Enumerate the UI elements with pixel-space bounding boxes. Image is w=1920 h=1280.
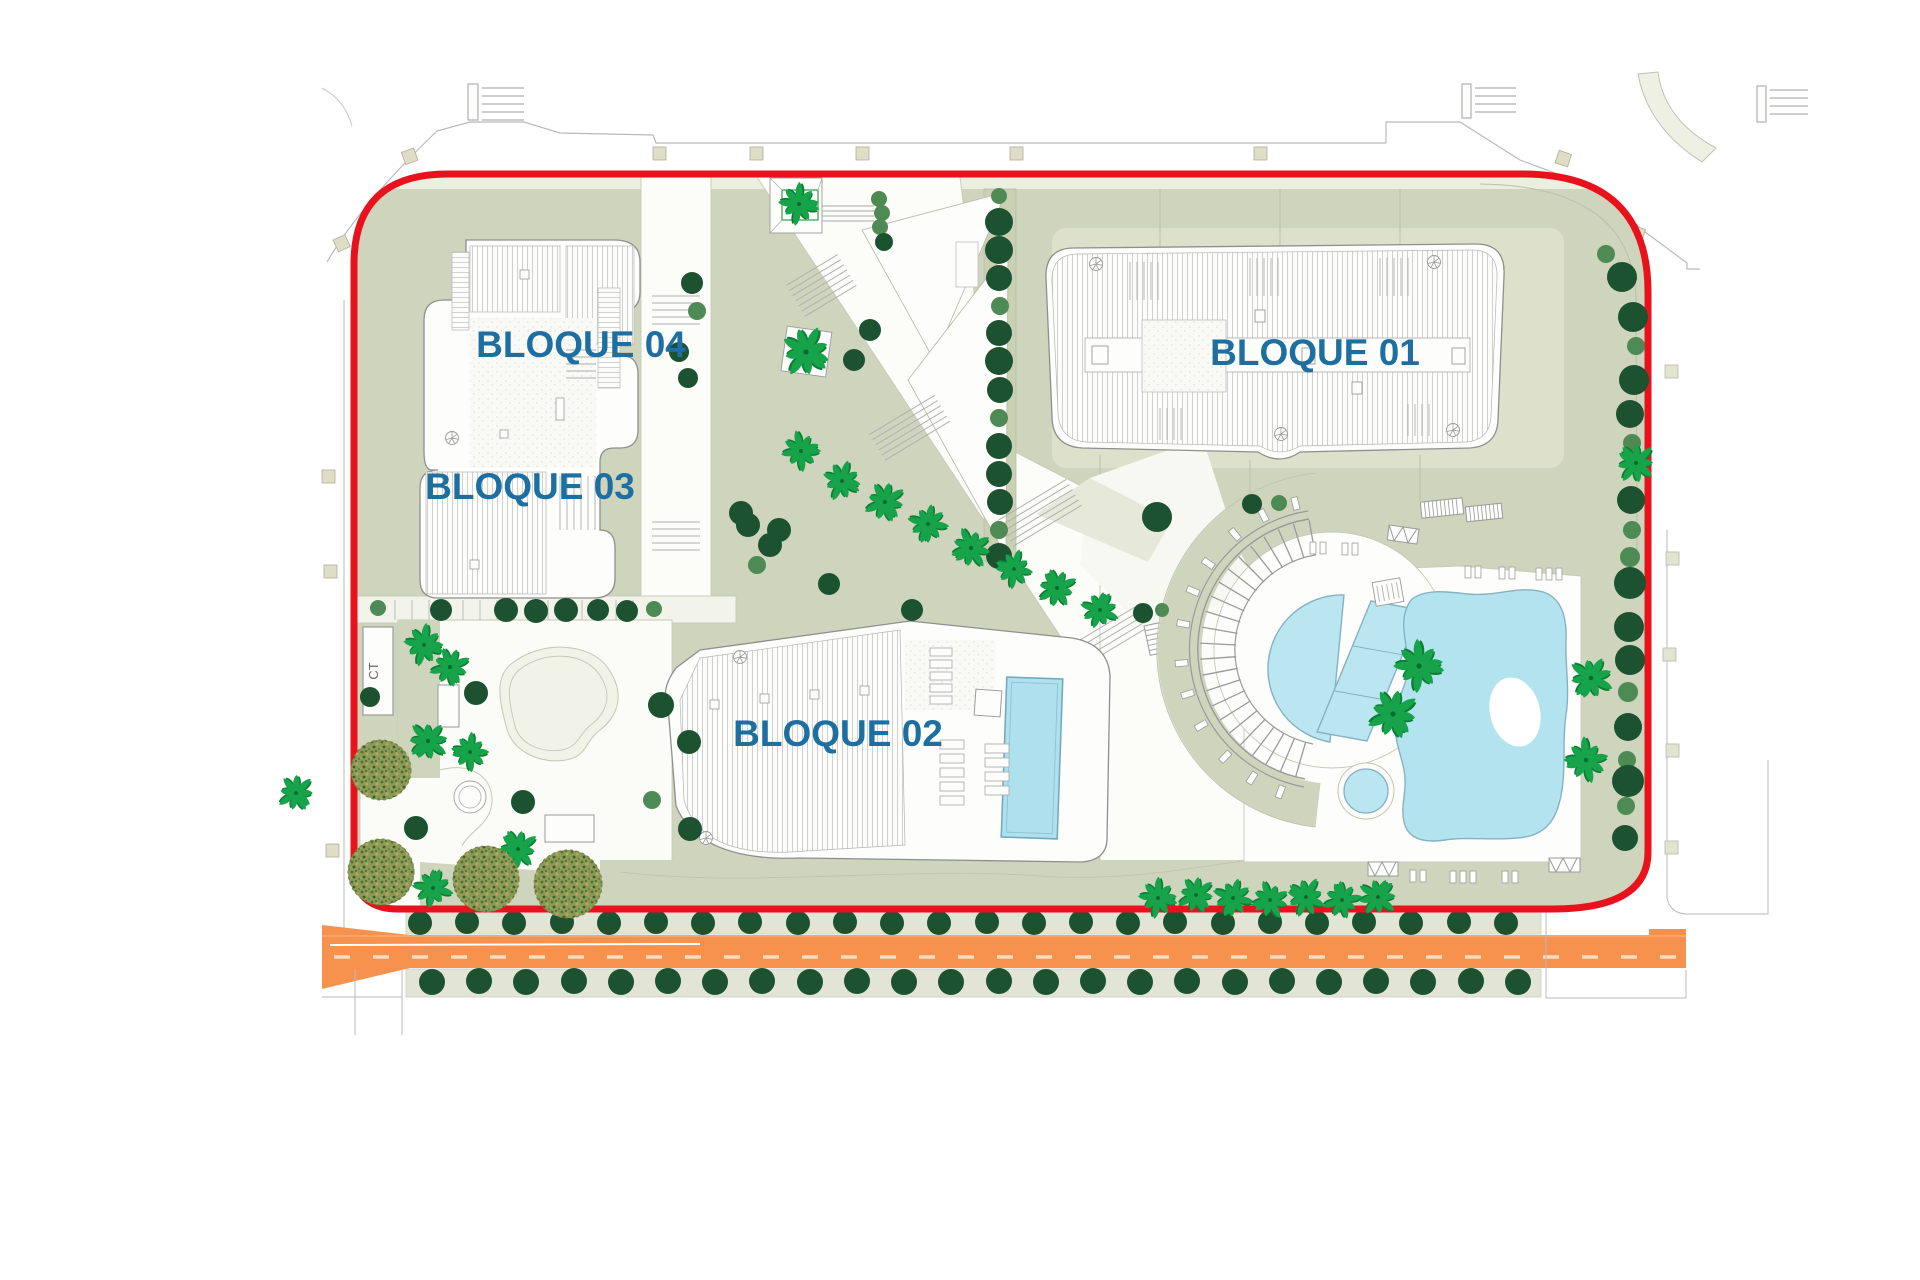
svg-text:BLOQUE 01: BLOQUE 01 — [1210, 332, 1420, 373]
svg-text:CT: CT — [366, 662, 381, 679]
svg-text:BLOQUE 02: BLOQUE 02 — [733, 713, 943, 754]
svg-text:BLOQUE 04: BLOQUE 04 — [476, 324, 686, 365]
svg-text:BLOQUE 03: BLOQUE 03 — [425, 466, 635, 507]
